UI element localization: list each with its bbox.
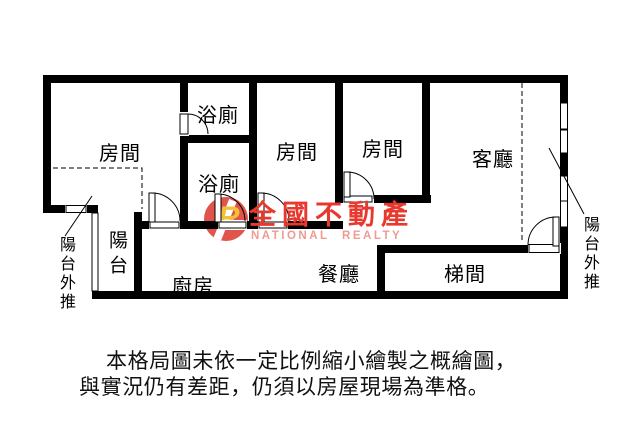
floor-plan-page: R xyxy=(0,0,626,440)
wall-bedroom2-3-divider xyxy=(335,83,343,203)
label-bath1: 浴廁 xyxy=(197,99,239,128)
disclaimer-line2: 與實況仍有差距，仍須以房屋現場為準格。 xyxy=(79,371,489,401)
window-balcony-left-icon xyxy=(92,213,98,291)
label-stair: 梯間 xyxy=(444,258,486,287)
wall-bath-left xyxy=(180,83,188,229)
wall-bath-divider xyxy=(180,135,257,143)
label-living: 客廳 xyxy=(472,143,514,172)
door-sill-bath2 xyxy=(219,222,246,228)
label-bedroom1: 房間 xyxy=(99,137,141,166)
door-leaf-entrance xyxy=(553,217,559,246)
wall-left xyxy=(43,83,51,213)
label-bedroom3: 房間 xyxy=(362,133,404,162)
annotation-balcony-pushout-left: 陽台外推 xyxy=(53,236,77,312)
brand-name: 全國不動產 xyxy=(249,200,414,230)
door-leaf-bedroom3 xyxy=(344,172,350,197)
door-sill-bedroom1 xyxy=(150,222,179,228)
label-bedroom2: 房間 xyxy=(276,136,318,165)
label-bath2: 浴廁 xyxy=(198,168,240,197)
door-sill-bath1 xyxy=(180,114,188,134)
label-kitchen: 廚房 xyxy=(172,270,214,299)
brand-subtitle: NATIONAL REALTY xyxy=(251,230,402,243)
wall-bottom xyxy=(92,291,568,299)
window-living-1-icon xyxy=(561,103,568,129)
wall-top xyxy=(43,75,568,83)
door-leaf-bedroom1 xyxy=(149,193,155,222)
window-living-2-icon xyxy=(561,130,568,153)
annotation-balcony-pushout-right: 陽台外推 xyxy=(577,216,601,292)
wall-living-left xyxy=(422,75,430,203)
dashed-balcony-pushout-left xyxy=(53,168,142,209)
door-swing-bedroom1-icon xyxy=(152,193,180,221)
label-dining: 餐廳 xyxy=(318,258,360,287)
window-living-4-icon xyxy=(561,201,568,227)
leader-line-left xyxy=(65,196,92,236)
door-swing-entrance-icon xyxy=(528,217,556,245)
door-leaf-bath2 xyxy=(215,194,221,222)
wall-stair-top xyxy=(377,245,528,253)
label-balcony: 陽台 xyxy=(103,230,130,280)
door-swing-bath2-icon xyxy=(218,194,245,221)
wall-stair-left xyxy=(377,253,385,299)
